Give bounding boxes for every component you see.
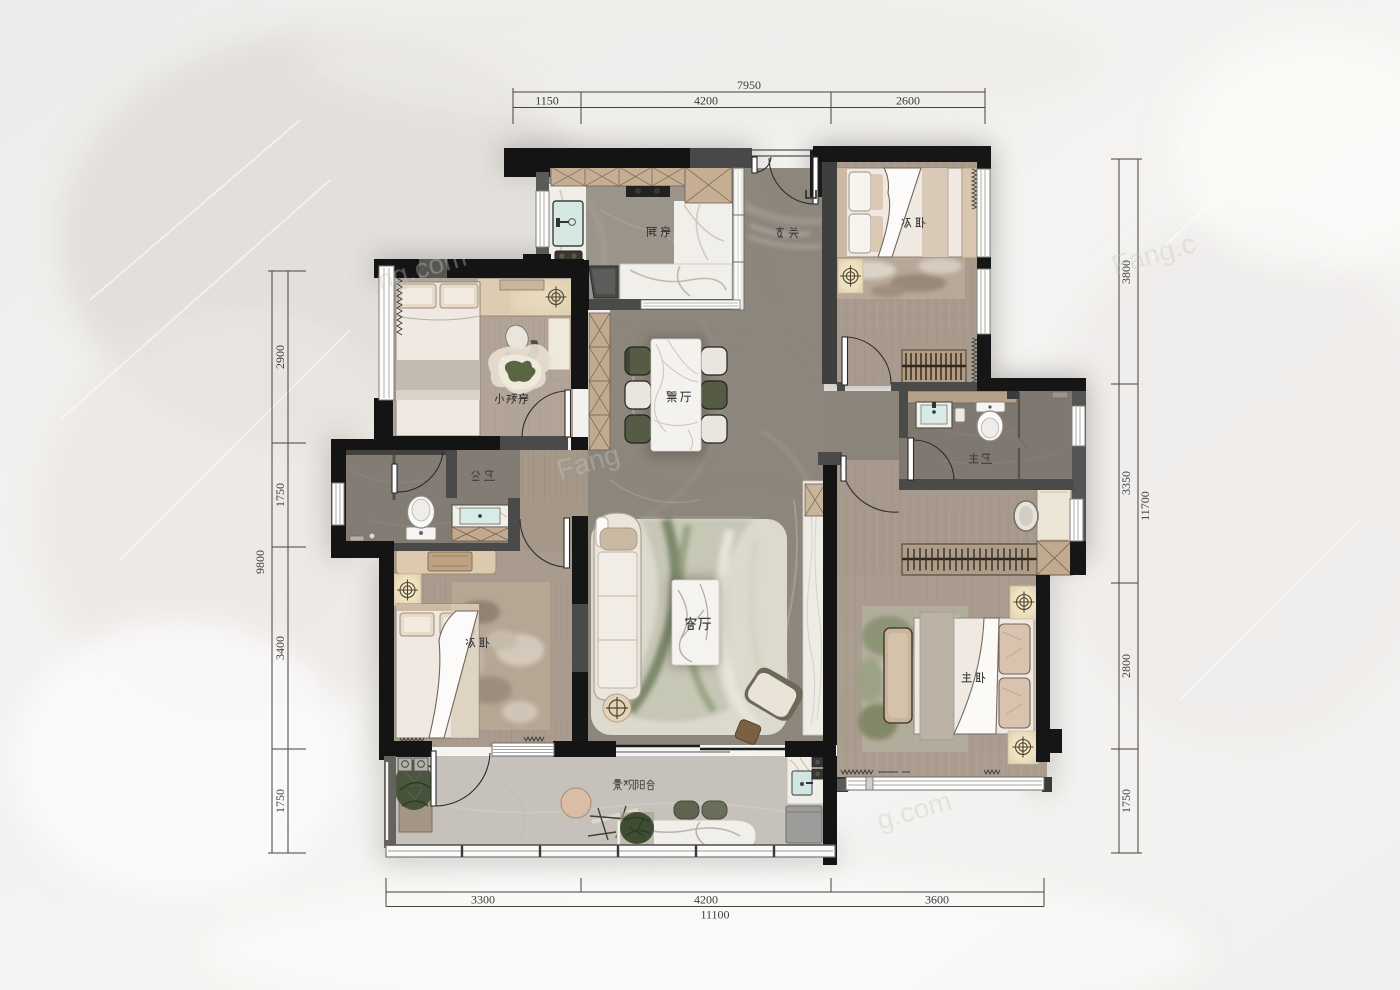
svg-text:3600: 3600 [925,893,949,907]
svg-text:11100: 11100 [700,908,729,922]
svg-text:1150: 1150 [535,94,559,108]
svg-text:2600: 2600 [896,94,920,108]
svg-text:3400: 3400 [273,636,287,660]
svg-text:2800: 2800 [1119,654,1133,678]
svg-text:7950: 7950 [737,78,761,92]
svg-text:1750: 1750 [273,789,287,813]
svg-text:1750: 1750 [1119,789,1133,813]
svg-text:11700: 11700 [1138,491,1152,521]
svg-text:3300: 3300 [471,893,495,907]
svg-text:9800: 9800 [253,550,267,574]
svg-text:1750: 1750 [273,483,287,507]
svg-text:2900: 2900 [273,345,287,369]
svg-text:4200: 4200 [694,94,718,108]
svg-text:3350: 3350 [1119,471,1133,495]
svg-text:4200: 4200 [694,893,718,907]
